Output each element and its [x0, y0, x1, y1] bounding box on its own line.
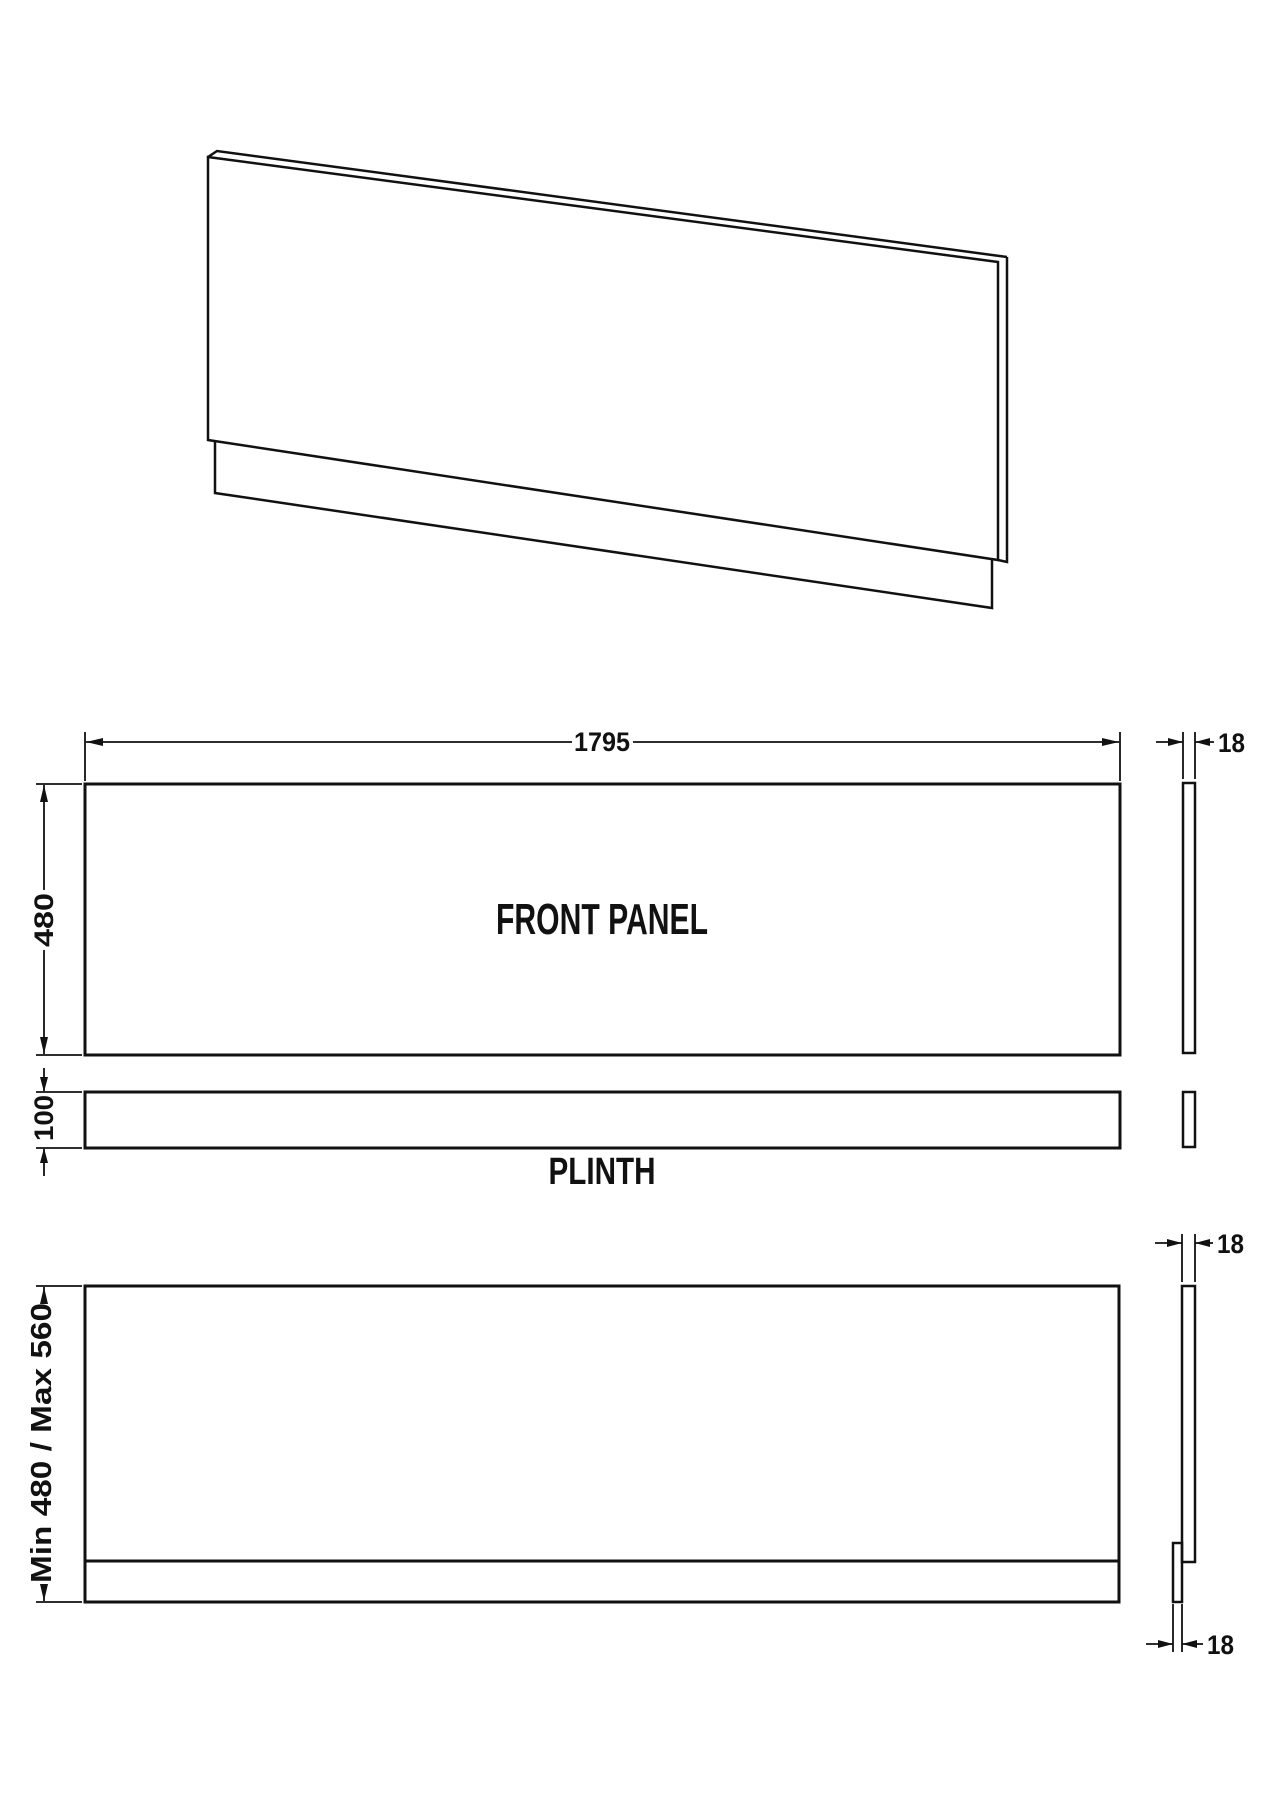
plinth-label: PLINTH	[549, 1151, 656, 1193]
adjustable-height-dimension: Min 480 / Max 560	[26, 1286, 82, 1602]
front-thickness-value: 18	[1218, 728, 1245, 758]
front-width-dimension: 1795	[85, 727, 1120, 781]
front-height-dimension: 480	[29, 784, 82, 1055]
front-height-value: 480	[29, 893, 59, 947]
plinth-rect	[85, 1092, 1120, 1148]
iso-panel-end-cap	[998, 257, 1007, 562]
adjustable-plinth-side-strip	[1173, 1543, 1182, 1602]
iso-plinth	[215, 441, 992, 608]
adjustable-panel-side-strip	[1182, 1286, 1195, 1562]
adjustable-panel-thickness-dimension: 18	[1155, 1229, 1244, 1282]
adjustable-panel-thickness-value: 18	[1217, 1229, 1244, 1259]
adjustable-view: Min 480 / Max 560 18	[26, 1229, 1244, 1660]
iso-view	[208, 151, 1007, 608]
plinth-side-strip	[1183, 1092, 1195, 1147]
iso-panel-face	[208, 157, 998, 560]
front-view: FRONT PANEL 1795 480	[29, 727, 1245, 1055]
adjustable-plinth-thickness-dimension: 18	[1146, 1604, 1234, 1660]
technical-drawing-page: FRONT PANEL 1795 480	[0, 0, 1272, 1800]
plinth-view: PLINTH 100	[29, 1068, 1195, 1193]
plinth-height-value: 100	[29, 1095, 59, 1141]
front-panel-side-strip	[1183, 783, 1195, 1053]
adjustable-plinth-thickness-value: 18	[1207, 1630, 1234, 1660]
adjustable-rect	[85, 1286, 1119, 1602]
plinth-height-dimension: 100	[29, 1068, 82, 1176]
front-panel-label: FRONT PANEL	[496, 895, 708, 944]
iso-panel-top-edge	[208, 151, 1007, 257]
front-width-value: 1795	[574, 727, 630, 757]
bath-panel-drawing: FRONT PANEL 1795 480	[0, 0, 1272, 1800]
front-thickness-dimension: 18	[1156, 728, 1245, 779]
adjustable-height-value: Min 480 / Max 560	[26, 1303, 58, 1583]
